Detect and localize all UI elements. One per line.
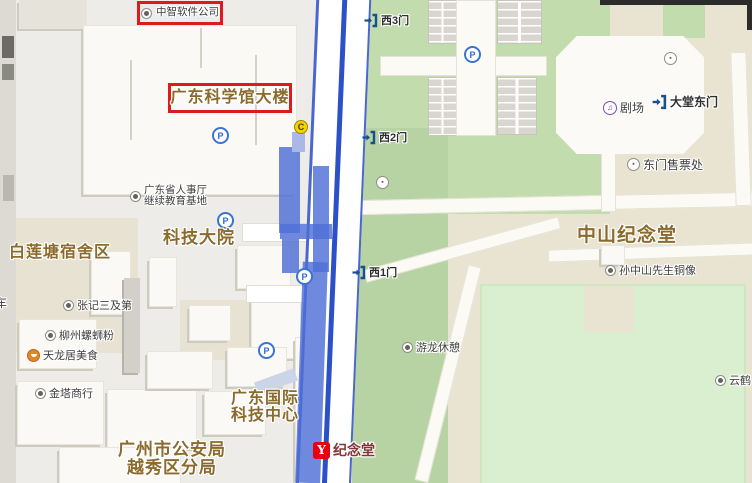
metro-station-label: 纪念堂 [333, 440, 375, 460]
screen-edge [600, 0, 752, 5]
route-segment [313, 166, 329, 272]
poi-label: 广东省人事厅继续教育基地 [144, 185, 207, 207]
poi-dot-icon [402, 342, 413, 353]
gate-icon [351, 265, 366, 280]
facility-poi[interactable]: ▪ [664, 52, 677, 65]
route-segment [280, 224, 332, 239]
poi-zhangji[interactable]: 张记三及第 [63, 297, 132, 313]
gate-icon [361, 130, 376, 145]
poi-youlong[interactable]: 游龙休憩 [402, 339, 460, 355]
area-label-intl-tech-center: 广东国际科技中心 [231, 391, 299, 425]
poi-jinta[interactable]: 金塔商行 [35, 385, 93, 401]
edge-road-label: 车 [0, 294, 7, 311]
map-canvas[interactable]: P P P P P C ▪ ▪ 西3门 西2门 西1门 大堂东门 广东省人事厅继… [0, 0, 752, 483]
lawn-notch [584, 286, 634, 332]
parking-icon[interactable]: P [296, 268, 313, 285]
parking-road [456, 0, 496, 136]
facility-poi[interactable]: ▪ [376, 176, 389, 189]
building [20, 0, 86, 28]
building [148, 352, 212, 388]
poi-dot-icon [715, 375, 726, 386]
gate-label: 西1门 [369, 264, 397, 280]
parking-icon[interactable]: P [258, 342, 275, 359]
camera-icon[interactable]: C [294, 120, 308, 134]
parking-lot-grid [497, 77, 537, 135]
poi-yunhe[interactable]: 云鹤 [715, 372, 751, 388]
area-label-zhongshan-hall: 中山纪念堂 [577, 226, 677, 246]
parking-lot-grid [428, 0, 457, 44]
annotation-building-label: 广东科学馆大楼 [171, 90, 290, 107]
poi-liuzhou[interactable]: 柳州螺蛳粉 [45, 327, 114, 343]
annotation-box-science-hall: 广东科学馆大楼 [168, 83, 292, 113]
gate-west1[interactable]: 西1门 [351, 264, 397, 280]
area-label-bailiantang: 白莲塘宿舍区 [9, 245, 111, 262]
edge-building [2, 36, 14, 58]
parking-letter: P [217, 131, 223, 141]
poi-statue[interactable]: 孙中山先生铜像 [605, 262, 696, 278]
park-path [601, 146, 616, 212]
annotation-company-label: 中智软件公司 [156, 7, 219, 18]
area-label-keji-dayuan: 科技大院 [163, 229, 235, 247]
poi-label: 东门售票处 [643, 156, 703, 173]
poi-label: 张记三及第 [77, 297, 132, 313]
facility-icon: ▪ [376, 176, 389, 189]
poi-dot-icon [130, 191, 141, 202]
area-label-police: 广州市公安局越秀区分局 [118, 441, 226, 477]
parking-icon[interactable]: P [212, 127, 229, 144]
poi-dot-icon [45, 330, 56, 341]
poi-juchang[interactable]: ♫ 剧场 [603, 99, 644, 116]
poi-ticket-office[interactable]: ▪ 东门售票处 [627, 156, 703, 173]
building-detail-line [200, 28, 202, 68]
building [150, 258, 176, 306]
facility-icon: ▪ [664, 52, 677, 65]
parking-letter: P [469, 50, 475, 60]
gate-label: 大堂东门 [670, 93, 718, 110]
building-detail-line [130, 60, 132, 140]
parking-letter: P [263, 346, 269, 356]
poi-label: 天龙居美食 [43, 347, 98, 363]
poi-label: 金塔商行 [49, 385, 93, 401]
poi-dot-icon [35, 388, 46, 399]
edge-building [2, 64, 14, 80]
building [190, 306, 230, 340]
gate-label: 西3门 [381, 12, 409, 28]
poi-renshiting[interactable]: 广东省人事厅继续教育基地 [130, 185, 207, 207]
parking-lot-grid [428, 77, 457, 136]
gate-icon [651, 94, 667, 110]
food-icon [27, 349, 40, 362]
edge-building [3, 175, 14, 201]
gate-west2[interactable]: 西2门 [361, 129, 407, 145]
poi-label: 云鹤 [729, 372, 751, 388]
poi-label: 剧场 [620, 99, 644, 116]
park-green-patch [663, 0, 705, 38]
annotation-box-company: 中智软件公司 [137, 1, 223, 25]
poi-dot-icon [605, 265, 616, 276]
theater-icon: ♫ [603, 101, 617, 115]
gate-icon [363, 13, 378, 28]
poi-dot-icon [141, 8, 152, 19]
poi-dot-icon [63, 300, 74, 311]
camera-letter: C [298, 122, 305, 132]
screen-edge [747, 0, 752, 30]
route-segment-light [292, 132, 305, 152]
parking-lot-grid [497, 0, 542, 44]
route-segment [279, 147, 300, 233]
parking-icon[interactable]: P [464, 46, 481, 63]
parking-icon[interactable]: P [217, 212, 234, 229]
gate-west3[interactable]: 西3门 [363, 12, 409, 28]
parking-letter: P [222, 216, 228, 226]
metro-icon: Y [313, 442, 330, 459]
route-segment [282, 239, 299, 273]
metro-station-jinianting[interactable]: Y 纪念堂 [313, 440, 375, 460]
poi-label: 柳州螺蛳粉 [59, 327, 114, 343]
ticket-icon: ▪ [627, 158, 640, 171]
gate-label: 西2门 [379, 129, 407, 145]
poi-label: 孙中山先生铜像 [619, 262, 696, 278]
building [124, 278, 140, 373]
gate-hall-east[interactable]: 大堂东门 [651, 93, 718, 110]
parking-letter: P [301, 272, 307, 282]
poi-label: 游龙休憩 [416, 339, 460, 355]
side-road [246, 285, 310, 303]
poi-tianlongju[interactable]: 天龙居美食 [27, 347, 98, 363]
